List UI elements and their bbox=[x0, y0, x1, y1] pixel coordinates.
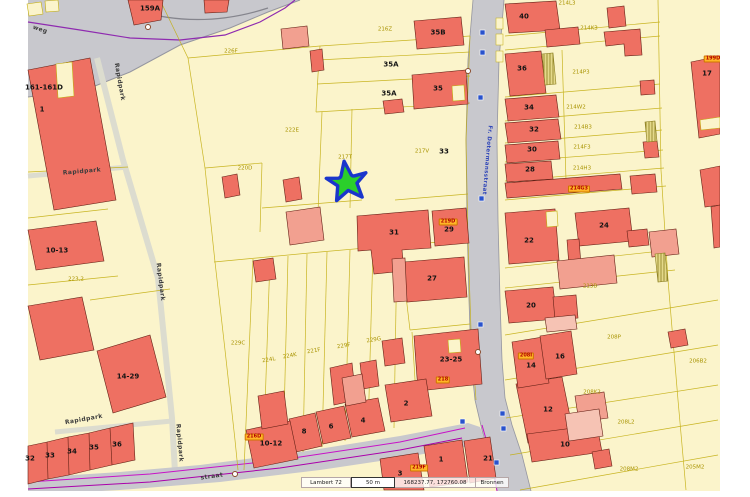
parcel-label: 217V bbox=[415, 149, 429, 155]
parcel-label: 214W2 bbox=[566, 105, 585, 111]
house-label: 27 bbox=[427, 276, 437, 283]
house-label: 35B bbox=[430, 30, 445, 37]
house-label: 35A bbox=[383, 62, 398, 69]
house-label: 1 bbox=[439, 457, 444, 464]
parcel-label: 205M2 bbox=[686, 465, 705, 471]
house-label: 32 bbox=[25, 456, 35, 463]
house-label: 22 bbox=[524, 238, 534, 245]
house-label: 33 bbox=[45, 453, 55, 460]
parcel-label: 214H3 bbox=[573, 166, 591, 172]
sources-button[interactable]: Bronnen bbox=[476, 477, 509, 488]
house-label: 33 bbox=[439, 149, 449, 156]
house-label: 34 bbox=[67, 449, 77, 456]
tag-label: 208I bbox=[518, 353, 534, 360]
house-label: 21 bbox=[483, 456, 493, 463]
parcel-label: 208P bbox=[607, 335, 621, 341]
parcel-label: 222E bbox=[285, 128, 299, 134]
house-label: 34 bbox=[524, 105, 534, 112]
scale-label: 50 m bbox=[366, 480, 380, 486]
parcel-label: 213B bbox=[583, 284, 597, 290]
parcel-label: 220D bbox=[238, 166, 253, 172]
house-label: 40 bbox=[519, 14, 529, 21]
house-label: 31 bbox=[389, 230, 399, 237]
house-label: 12 bbox=[543, 407, 553, 414]
house-label: 35 bbox=[433, 86, 443, 93]
house-label: 10-13 bbox=[46, 248, 68, 255]
parcel-label: 223,2 bbox=[68, 277, 84, 283]
house-label: 23-25 bbox=[440, 357, 462, 364]
house-label: 36 bbox=[517, 66, 527, 73]
tag-label: 214G3 bbox=[568, 186, 590, 193]
house-label: 35 bbox=[89, 445, 99, 452]
house-label: 16 bbox=[555, 354, 565, 361]
house-label: 28 bbox=[525, 167, 535, 174]
status-bar: Lambert 72 50 m 168237.77, 172760.08 Bro… bbox=[301, 477, 509, 488]
tag-label: 216D bbox=[245, 434, 264, 441]
house-label: 14 bbox=[526, 363, 536, 370]
parcel-label: 214B3 bbox=[574, 125, 592, 131]
house-label: 10-12 bbox=[260, 441, 282, 448]
parcel-label: 216Z bbox=[378, 27, 392, 33]
scale-bar: 50 m bbox=[351, 477, 395, 488]
house-label: 14-29 bbox=[117, 374, 139, 381]
house-label: 8 bbox=[302, 429, 307, 436]
house-label: 35A bbox=[381, 91, 396, 98]
house-label: 20 bbox=[526, 303, 536, 310]
parcel-label: 229C bbox=[231, 341, 245, 347]
house-label: 10 bbox=[560, 442, 570, 449]
house-label: 1 bbox=[40, 107, 45, 114]
tag-label: 219F bbox=[410, 465, 428, 472]
parcel-label: 208K2 bbox=[583, 390, 601, 396]
parcel-label: 214P3 bbox=[572, 70, 589, 76]
house-label: 30 bbox=[527, 147, 537, 154]
parcel-label: 214K3 bbox=[580, 26, 598, 32]
house-label: 36 bbox=[112, 442, 122, 449]
tag-label: 218 bbox=[436, 377, 450, 384]
coordinates-display: 168237.77, 172760.08 bbox=[395, 477, 476, 488]
house-label: 29 bbox=[444, 227, 454, 234]
map-application-window: wegRapidparkRapidparkRapidparkRapidparkR… bbox=[0, 0, 750, 497]
parcel-label: 208M2 bbox=[620, 467, 639, 473]
house-label: 32 bbox=[529, 127, 539, 134]
parcel-label: 208L2 bbox=[617, 420, 634, 426]
house-label: 6 bbox=[329, 424, 334, 431]
house-label: 4 bbox=[361, 418, 366, 425]
parcel-label: 226F bbox=[224, 49, 238, 55]
house-label: 161-161D bbox=[25, 85, 63, 92]
house-label: 24 bbox=[599, 223, 609, 230]
house-label: 2 bbox=[404, 401, 409, 408]
tag-label: 219D bbox=[439, 219, 458, 226]
tag-label: 199D bbox=[704, 56, 720, 63]
parcel-label: 217T bbox=[338, 155, 352, 161]
parcel-label: 214L3 bbox=[558, 1, 575, 7]
map-viewport[interactable]: wegRapidparkRapidparkRapidparkRapidparkR… bbox=[0, 0, 720, 491]
crs-indicator: Lambert 72 bbox=[301, 477, 351, 488]
parcel-label: 214F3 bbox=[573, 145, 590, 151]
parcel-label: 206B2 bbox=[689, 359, 707, 365]
house-label: 17 bbox=[702, 71, 712, 78]
house-label: 159A bbox=[140, 6, 160, 13]
